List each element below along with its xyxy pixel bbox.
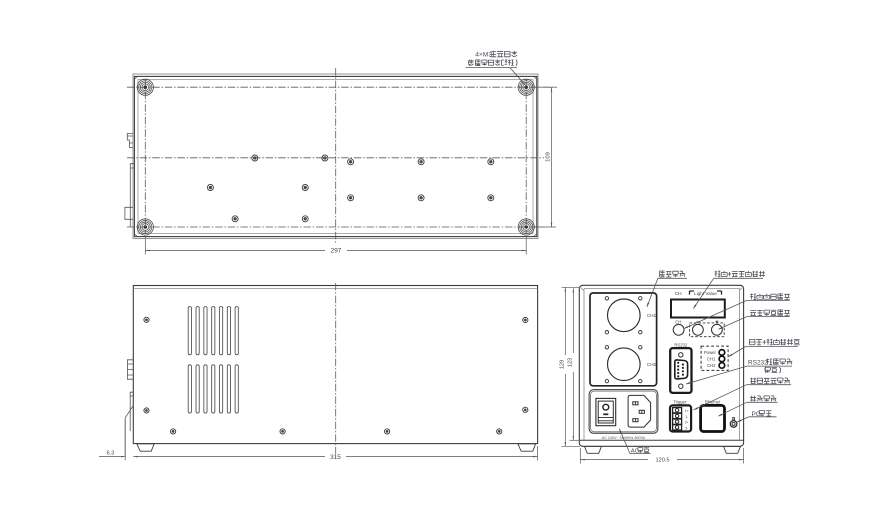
svg-text:123: 123 bbox=[568, 358, 574, 367]
svg-text:Trigger: Trigger bbox=[673, 399, 687, 404]
svg-text:CH1: CH1 bbox=[707, 357, 716, 362]
svg-text:4×M3: 4×M3 bbox=[475, 52, 492, 59]
svg-text:CH2: CH2 bbox=[707, 363, 716, 368]
svg-text:CH2: CH2 bbox=[647, 362, 657, 367]
svg-text:129: 129 bbox=[560, 360, 566, 369]
svg-text:CH: CH bbox=[675, 319, 681, 324]
svg-text:297: 297 bbox=[331, 248, 342, 255]
svg-text:RS232: RS232 bbox=[674, 342, 687, 347]
svg-text:RS232: RS232 bbox=[748, 359, 768, 366]
svg-text:2+: 2+ bbox=[685, 421, 689, 425]
svg-text:6.3: 6.3 bbox=[107, 451, 115, 457]
svg-text:Power: Power bbox=[704, 350, 717, 355]
svg-text:CH1: CH1 bbox=[647, 313, 657, 318]
svg-text:315: 315 bbox=[330, 454, 341, 461]
svg-text:CH: CH bbox=[675, 291, 682, 297]
svg-text:120.5: 120.5 bbox=[656, 458, 670, 464]
svg-text:1+: 1+ bbox=[685, 409, 689, 413]
svg-text:109: 109 bbox=[546, 152, 552, 162]
svg-text:Light Value: Light Value bbox=[694, 291, 717, 296]
